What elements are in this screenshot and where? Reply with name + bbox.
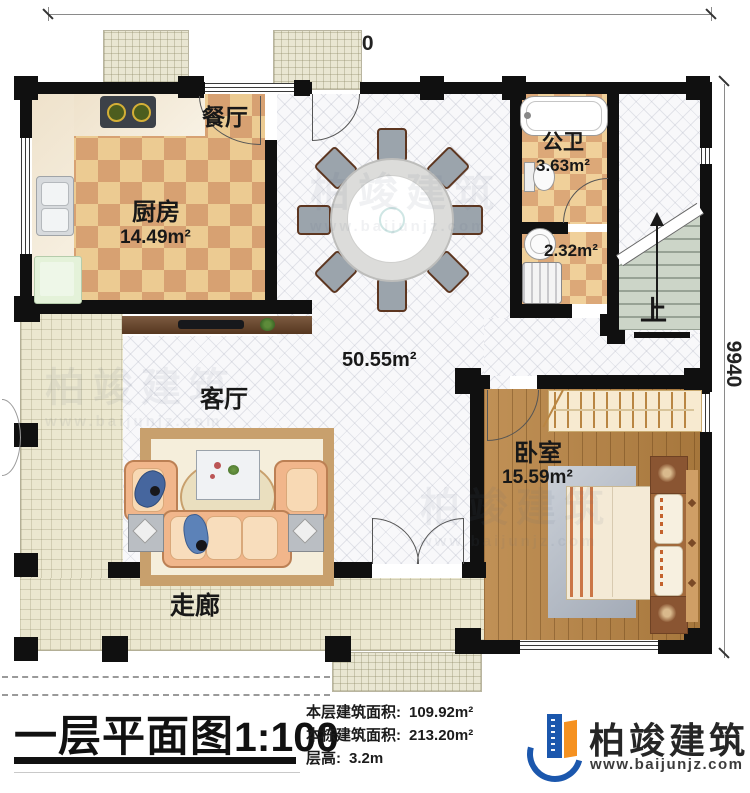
window [205,83,300,93]
roof-overhang-line [2,694,330,696]
wall-segment [265,140,277,302]
armchair-cushion [286,468,318,512]
sink-basin [41,208,69,232]
sofa-cushion [242,516,278,560]
plan-title-row: 一层平面图1:100 [14,702,339,764]
stat-row: 本栋建筑面积:213.20m² [306,724,473,747]
roof-overhang-line [2,676,330,678]
logo-building-windows [551,719,555,753]
room-area-hall: 50.55m² [342,350,417,370]
room-label-corridor: 走廊 [170,594,220,619]
room-label-bedroom: 卧室 [514,442,562,466]
wall-segment [462,562,486,578]
table-flowers [228,465,239,475]
column [455,628,481,654]
window [701,392,711,432]
wall-segment [360,82,712,94]
room-label-living: 客厅 [200,388,248,412]
dining-chair [297,205,331,235]
dining-chair [377,128,407,162]
plant [260,318,275,331]
pillow [654,546,683,596]
wall-segment [700,432,712,642]
title-underline [14,757,296,764]
entry-platform [103,30,189,90]
pillow [654,494,683,544]
column [14,637,38,661]
stairs-up-underline [634,332,690,338]
dimension-line-top [48,14,712,15]
stairs-up-label: 上 [640,298,667,325]
column [102,636,128,662]
column [178,76,204,98]
room-area-utility: 2.32m² [544,242,598,259]
entry-steps [332,652,482,692]
room-label-dining: 餐厅 [202,106,248,129]
column [14,76,38,100]
wall-segment [470,375,484,573]
wardrobe-rod [554,409,694,411]
stairs-arrow-head [650,212,664,226]
washing-machine [522,262,562,304]
dining-chair [377,278,407,312]
stat-value: 213.20m² [409,727,473,744]
window [21,138,31,254]
bed-post-ornament [658,464,676,482]
logo-building-icon-orange [564,720,577,758]
stat-value: 109.92m² [409,704,473,721]
pillow-pattern [660,498,663,538]
wall-segment [607,82,619,318]
column [420,76,444,100]
dining-table-center [379,207,405,233]
brand-website: www.baijunjz.com [590,756,743,773]
entry-platform [273,30,362,90]
floor-plan-canvas: 11940 9940 [0,0,750,793]
stove-burner [107,103,126,122]
stove-burner [132,103,151,122]
brand-logo: 柏竣建筑 www.baijunjz.com [527,710,745,780]
person-head [196,540,207,551]
stat-row: 层高:3.2m [306,747,473,770]
column [455,368,481,394]
table-decor [210,474,215,479]
sink-basin [41,182,69,206]
table-decor [214,462,221,469]
column [14,553,38,577]
tv [178,320,244,329]
column [502,76,526,100]
room-label-kitchen: 厨房 [132,201,180,225]
sofa-cushion [206,516,242,560]
room-area-bath: 3.63m² [536,157,590,174]
stat-value: 3.2m [349,750,383,767]
bed-fold-line [612,487,613,597]
wall-segment [700,164,712,392]
stat-label: 本栋建筑面积: [306,727,401,744]
bed-post-ornament [658,604,676,622]
dining-chair [449,205,483,235]
wall-segment [510,304,572,318]
window [520,641,658,653]
stat-label: 层高: [306,750,341,767]
title-thin-line [14,772,300,773]
column [600,314,622,336]
stat-row: 本层建筑面积:109.92m² [306,701,473,724]
bathtub-inner [526,101,602,131]
coffee-table [196,450,260,500]
window [701,148,711,164]
stats-block: 本层建筑面积:109.92m² 本栋建筑面积:213.20m² 层高:3.2m [306,701,473,770]
room-area-bedroom: 15.59m² [502,468,573,487]
corridor-floor [20,578,484,651]
door-arc [2,437,21,476]
column [686,76,710,100]
stat-label: 本层建筑面积: [306,704,401,721]
door-arc [2,399,21,438]
bathtub-faucet [524,112,531,119]
plan-title: 一层平面图 [14,713,234,761]
person-head [150,486,160,496]
room-area-kitchen: 14.49m² [120,228,191,247]
column [325,636,351,662]
fridge-top [40,262,74,296]
column [294,80,310,96]
dimension-right-label: 9940 [721,321,745,407]
room-label-bath: 公卫 [542,132,584,153]
bed-blanket-stripes [570,487,594,597]
pillow-pattern [660,550,663,590]
